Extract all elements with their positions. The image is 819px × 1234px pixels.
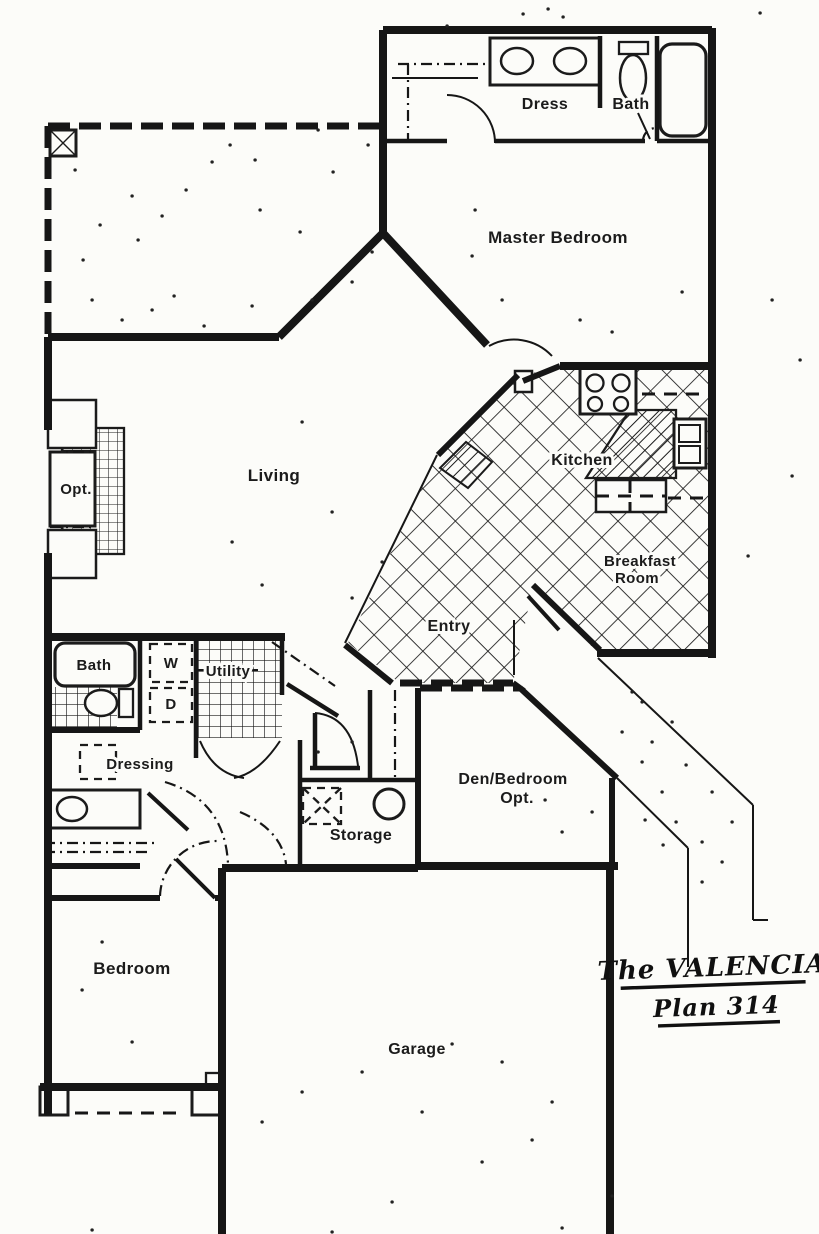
wall-oven-icon xyxy=(674,419,706,468)
utility-label: Utility xyxy=(206,663,251,680)
entry-label: Entry xyxy=(428,618,471,635)
den-bedroom-label-line1: Den/Bedroom xyxy=(458,771,567,788)
water-heater-icon xyxy=(374,789,404,819)
master-bath-label: Bath xyxy=(612,96,649,113)
plan-title: The VALENCIA Plan 314 xyxy=(597,949,819,1028)
garage-label: Garage xyxy=(388,1041,446,1058)
storage-label: Storage xyxy=(330,827,392,844)
vanity-counter xyxy=(490,38,600,85)
dryer-label: D xyxy=(165,696,176,713)
toilet-icon xyxy=(620,55,646,101)
toilet-icon xyxy=(85,690,117,716)
hvac-platform-icon xyxy=(303,788,341,824)
washer-label: W xyxy=(164,655,179,672)
bedroom-label: Bedroom xyxy=(93,959,170,978)
living-label: Living xyxy=(248,466,300,485)
bathtub-icon xyxy=(660,44,706,136)
master-bedroom-label: Master Bedroom xyxy=(488,228,628,247)
toilet-tank xyxy=(119,689,133,717)
breakfast-room-label-line1: Breakfast xyxy=(604,553,676,570)
toilet-tank xyxy=(619,42,648,54)
kitchen-label: Kitchen xyxy=(551,452,612,469)
dressing-label: Dressing xyxy=(106,756,173,773)
hall-bath-label: Bath xyxy=(77,657,112,674)
floor-plan-page: Dress Bath Master Bedroom Living Opt. Ki… xyxy=(0,0,819,1234)
floor-plan-drawing: Dress Bath Master Bedroom Living Opt. Ki… xyxy=(0,0,819,1234)
utility-tile-floor xyxy=(197,641,282,738)
fireplace-opt-label: Opt. xyxy=(60,481,92,498)
den-bedroom-label-line2: Opt. xyxy=(500,790,534,807)
dressing-vanity xyxy=(48,790,140,828)
plan-title-line2: Plan 314 xyxy=(652,990,781,1023)
breakfast-room-label-line2: Room xyxy=(615,570,659,587)
dress-label: Dress xyxy=(522,96,568,113)
